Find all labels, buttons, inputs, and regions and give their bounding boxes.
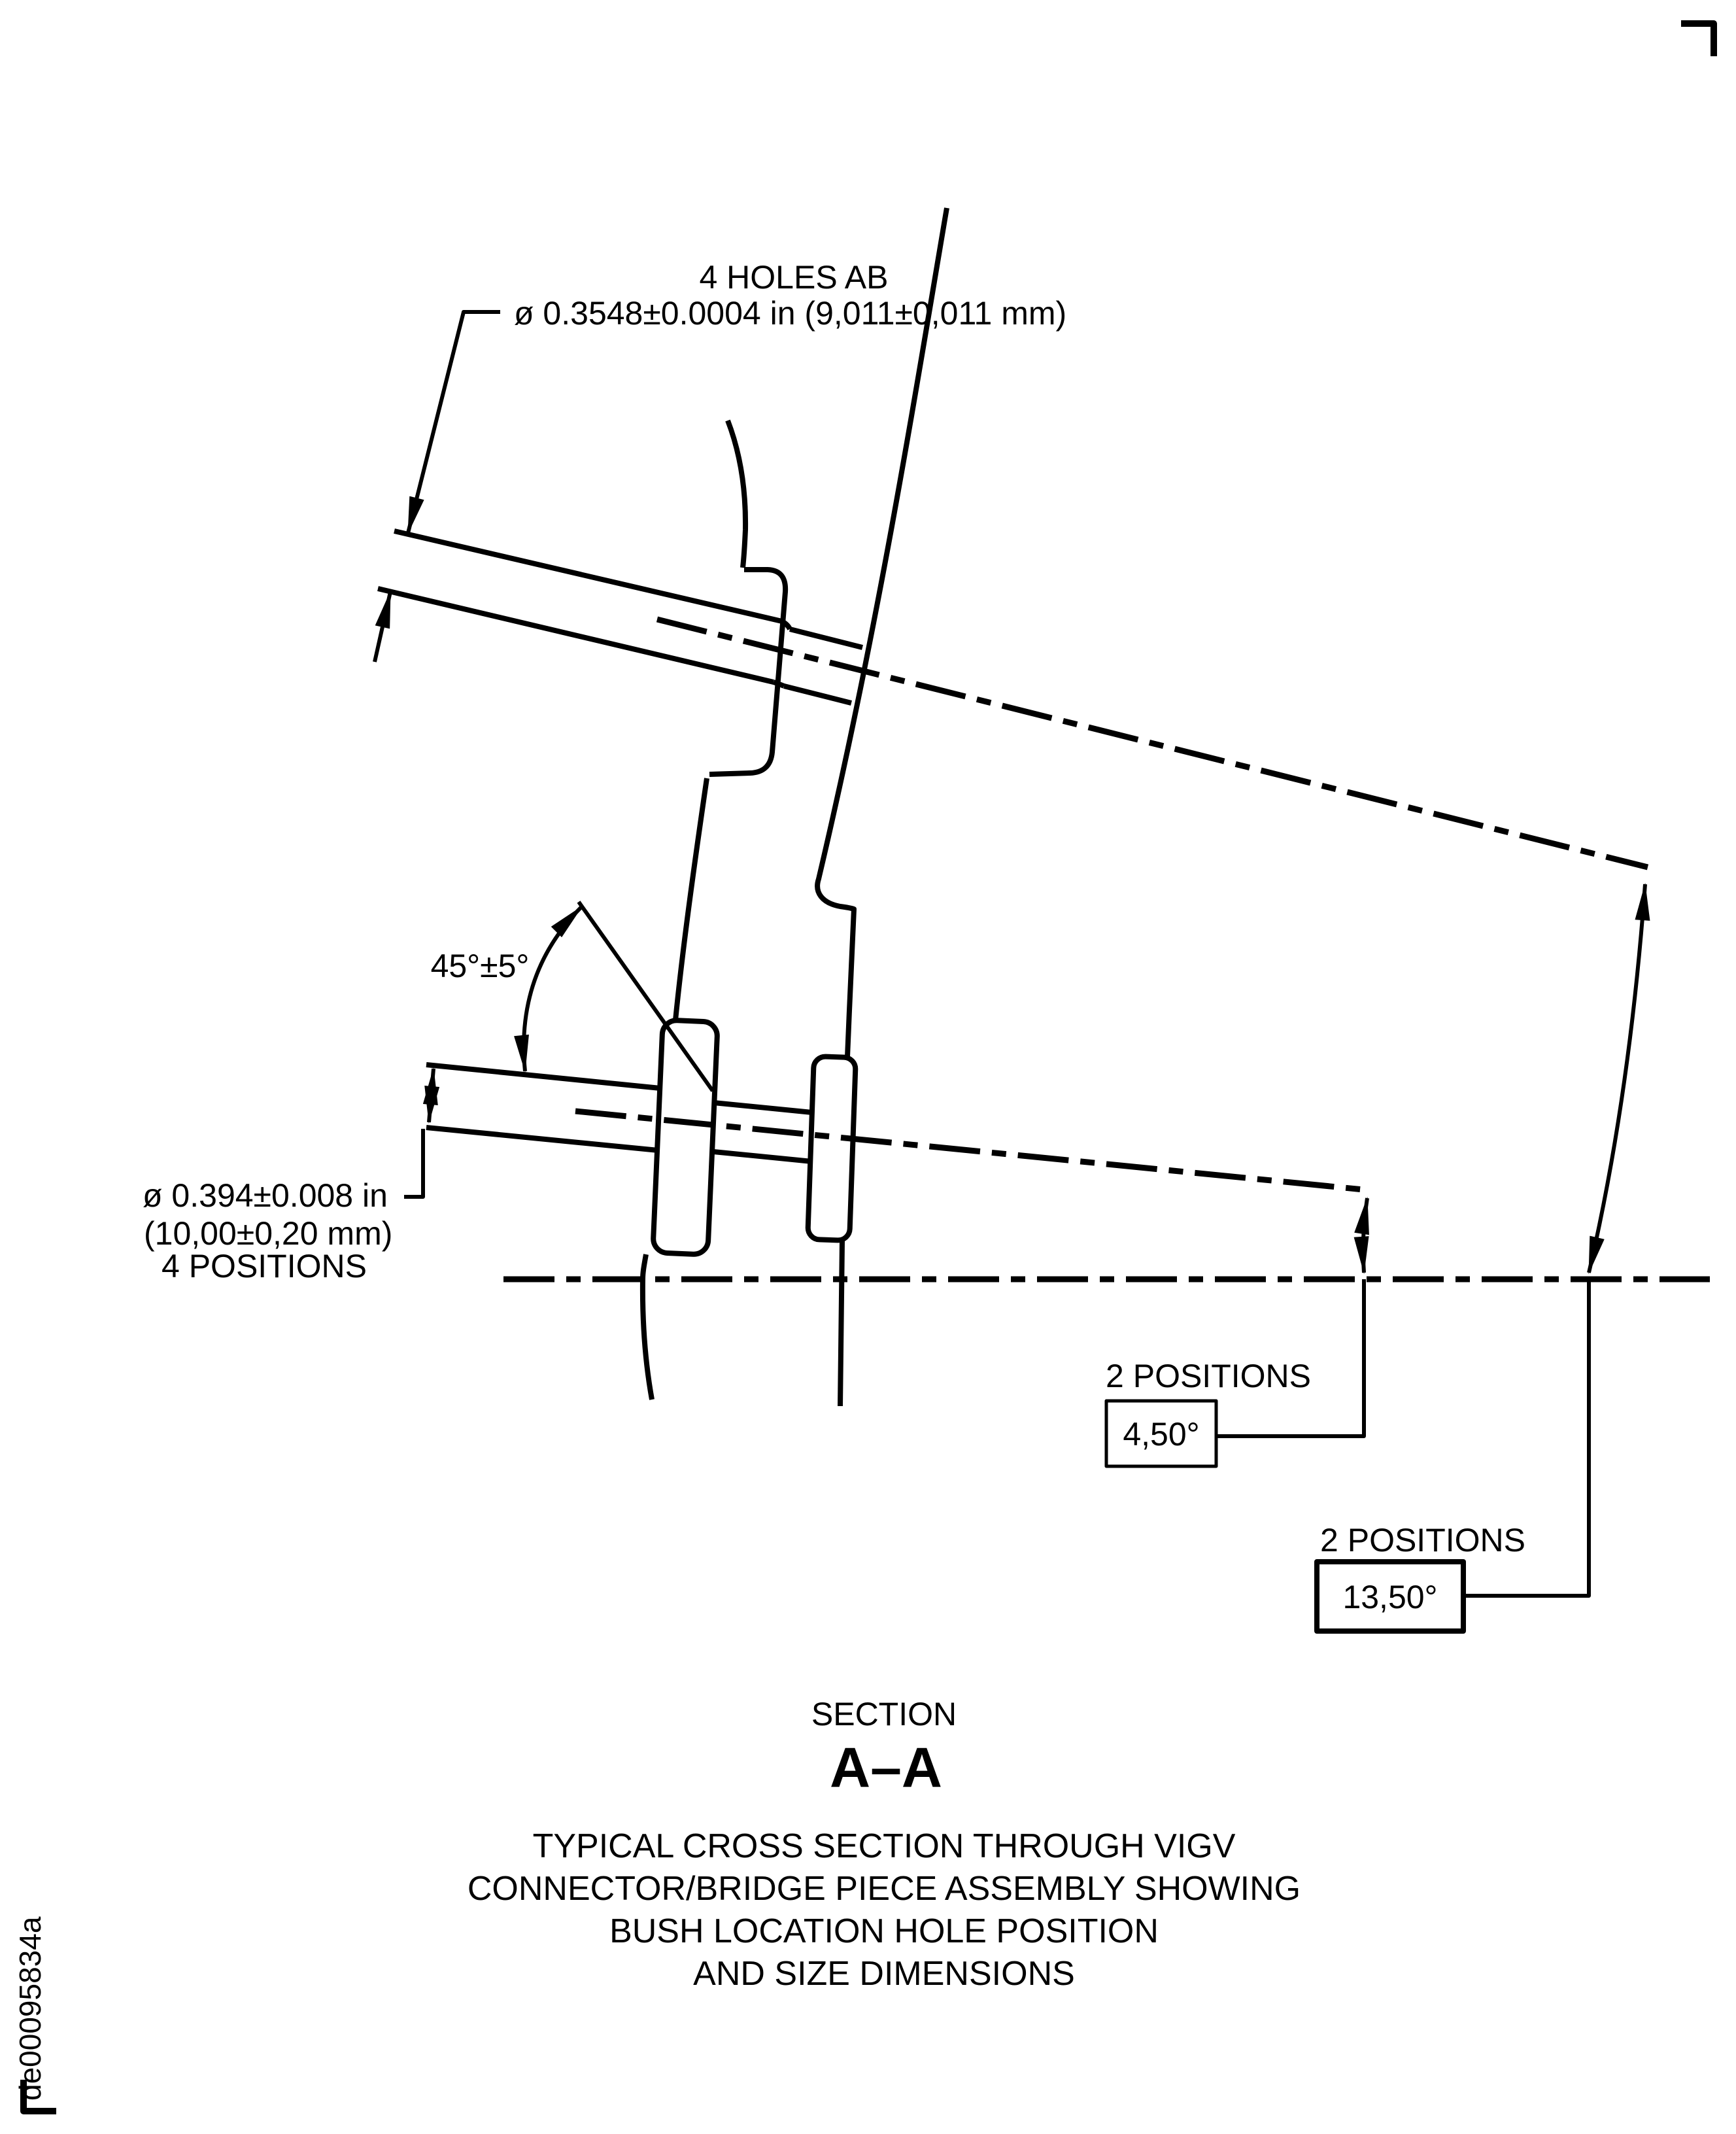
lower-pin-top-edge xyxy=(426,1065,660,1088)
section-title: A–A xyxy=(830,1736,942,1799)
bridge-piece-flange-outline xyxy=(808,1056,856,1241)
lower-pin-centerline xyxy=(575,1111,1363,1190)
engineering-drawing-page: 4 HOLES AB ø 0.3548±0.0004 in (9,011±0,0… xyxy=(0,0,1736,2134)
angle-45-dimension-arc xyxy=(524,906,582,1071)
upper-pin-shank-top xyxy=(790,629,862,647)
dim-13-50-arc xyxy=(1589,884,1645,1273)
casing-left-contour-lower xyxy=(643,1254,652,1400)
angle-45-label: 45°±5° xyxy=(431,948,530,984)
page-corner-mark-top-right xyxy=(1681,24,1714,56)
caption-line4: AND SIZE DIMENSIONS xyxy=(693,1955,1075,1993)
left-label-line2: (10,00±0,20 mm) xyxy=(144,1215,392,1252)
lower-pin-diameter-arrows xyxy=(429,1069,434,1122)
upper-pin-bottom-edge xyxy=(378,589,774,682)
caption-line3: BUSH LOCATION HOLE POSITION xyxy=(609,1912,1159,1950)
lower-pin-bottom-edge xyxy=(426,1127,658,1150)
section-kicker: SECTION xyxy=(811,1696,957,1732)
lower-pin-shank-top xyxy=(713,1103,812,1112)
top-label-line2: ø 0.3548±0.0004 in (9,011±0,011 mm) xyxy=(514,295,1066,332)
angle-45-construction-line xyxy=(579,902,713,1091)
caption-line2: CONNECTOR/BRIDGE PIECE ASSEMBLY SHOWING xyxy=(468,1870,1301,1908)
left-label-leader xyxy=(404,1129,423,1197)
casing-right-contour-upper xyxy=(817,208,947,1057)
left-label-line1: ø 0.394±0.008 in xyxy=(143,1177,388,1214)
dim-13-50-caption: 2 POSITIONS xyxy=(1320,1522,1525,1558)
casing-left-contour-middle xyxy=(675,778,707,1020)
upper-pin-centerline xyxy=(657,619,1648,867)
casing-right-contour-lower xyxy=(840,1241,842,1406)
upper-pin-shank-bottom xyxy=(784,686,851,703)
doc-number-vertical: de00095834a xyxy=(13,1916,47,2101)
casing-left-contour-upper xyxy=(728,421,745,568)
top-label-line1: 4 HOLES AB xyxy=(699,259,888,296)
caption-line1: TYPICAL CROSS SECTION THROUGH VIGV xyxy=(533,1827,1236,1865)
upper-pin-diameter-arrow xyxy=(375,592,390,662)
dim-4-50-caption: 2 POSITIONS xyxy=(1106,1358,1311,1394)
top-label-leader-arrow xyxy=(408,312,500,533)
dim-4-50-value: 4,50° xyxy=(1123,1416,1199,1453)
left-label-line3: 4 POSITIONS xyxy=(162,1248,367,1284)
lower-pin-shank-bottom xyxy=(713,1152,812,1162)
dim-4-50-arc xyxy=(1363,1198,1367,1273)
section-drawing-canvas: 4 HOLES AB ø 0.3548±0.0004 in (9,011±0,0… xyxy=(0,0,1736,2134)
dim-13-50-value: 13,50° xyxy=(1342,1579,1437,1615)
